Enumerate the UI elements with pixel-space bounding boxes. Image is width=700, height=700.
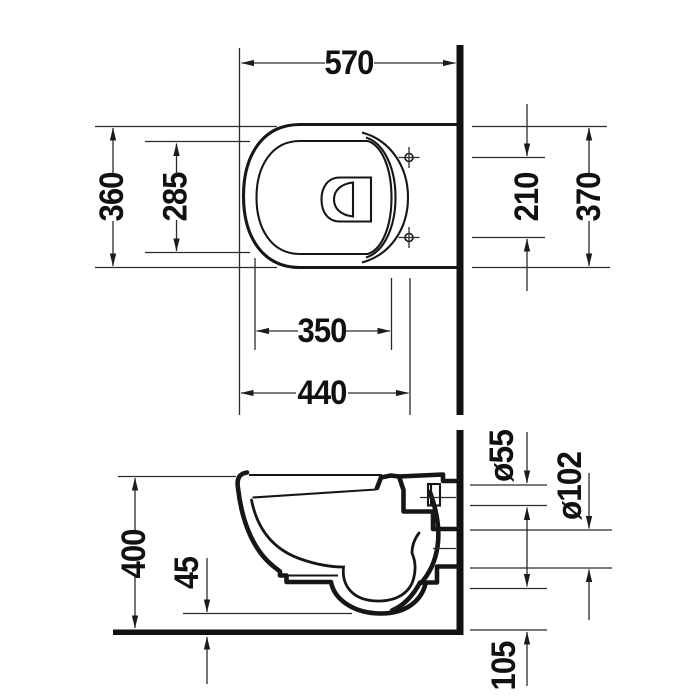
bowl-front-and-trap-outline	[238, 473, 426, 614]
seat-bottom-line	[253, 490, 377, 498]
technical-drawing-page: 570 360 285 210 370	[0, 0, 700, 700]
dim-hole-spacing: 210	[472, 104, 546, 291]
dim-supply-pipe-diameter-label: ø55	[483, 430, 521, 482]
dim-inner-depth-label: 350	[298, 312, 347, 350]
dim-overall-depth: 570	[240, 44, 456, 415]
dim-inner-depth: 350	[255, 258, 392, 350]
dim-outlet-height-label: 105	[485, 641, 523, 690]
toilet-plan-outline	[244, 125, 459, 268]
dim-supply-pipe-diameter: ø55	[483, 430, 527, 587]
supply-pipe-stub-lines	[470, 485, 547, 506]
top-view: 570 360 285 210 370	[93, 44, 610, 415]
dim-outlet-pipe-diameter: ø102	[551, 452, 589, 620]
dim-seat-width-label: 370	[570, 172, 608, 221]
dim-bowl-height: 400	[115, 477, 236, 629]
side-view: 400 45 ø55 ø102 105	[113, 430, 612, 691]
dim-overall-depth-label: 570	[325, 44, 374, 82]
dim-outlet-pipe-diameter-label: ø102	[551, 452, 589, 520]
wall-line-side-view	[457, 430, 464, 634]
dim-inner-width-label: 285	[157, 172, 195, 221]
bowl-inner-curve	[252, 500, 420, 601]
dim-bowl-width-label: 360	[93, 172, 131, 221]
dim-floor-clearance-label: 45	[168, 557, 206, 589]
outlet-pipe-stub-lines	[470, 530, 612, 568]
dim-hole-depth-label: 440	[298, 374, 347, 412]
flush-opening-crescent	[334, 183, 353, 217]
dim-outlet-height: 105	[485, 632, 527, 691]
floor-line	[113, 630, 464, 636]
seat-inner-rim	[257, 141, 369, 254]
toilet-dimension-drawing: 570 360 285 210 370	[0, 0, 700, 700]
dim-bowl-height-label: 400	[115, 529, 153, 578]
toilet-side-outline	[238, 473, 456, 614]
wall-line-top-view	[457, 45, 464, 415]
pipe-reference-lines	[470, 485, 612, 630]
dim-hole-spacing-label: 210	[508, 172, 546, 221]
dim-inner-width: 285	[145, 142, 250, 253]
seat-hinge-and-inlet-block	[377, 476, 456, 530]
inlet-block-top-edge	[399, 475, 456, 482]
